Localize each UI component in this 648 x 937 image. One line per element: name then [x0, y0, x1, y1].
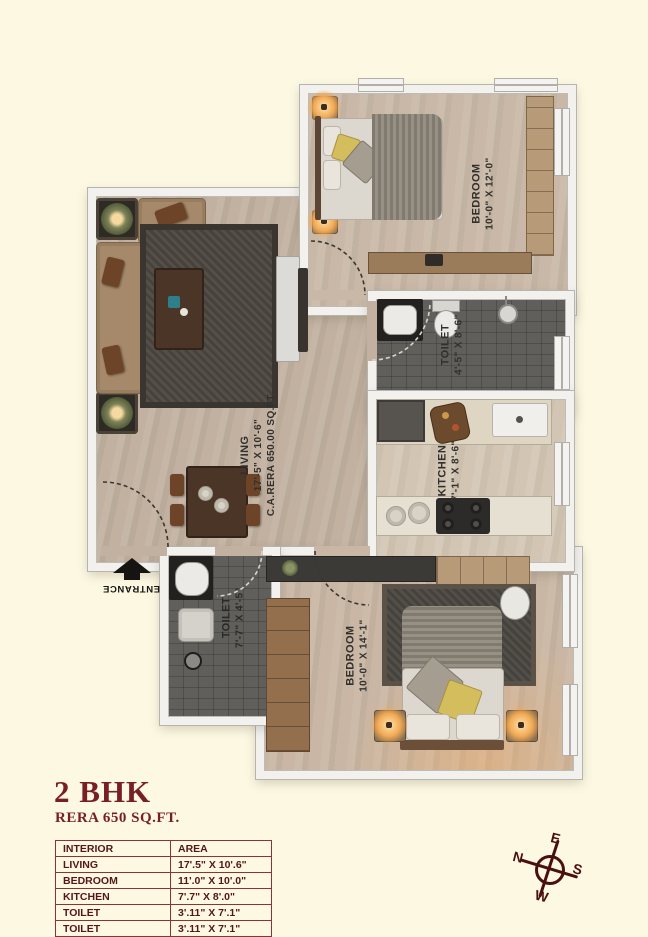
door-opening	[314, 546, 370, 556]
room-label-kitchen: KITCHEN 7'-1" X 8'-6"	[435, 416, 462, 526]
bedside-lamp	[502, 706, 540, 744]
dining-chair	[170, 474, 184, 496]
coffee-table	[154, 268, 204, 350]
toilet-bowl	[178, 608, 214, 642]
cell-area: 3'.11" X 7'.1"	[171, 921, 272, 937]
shower-arm	[505, 296, 507, 305]
table-row: LIVING 17'.5" X 10'.6"	[56, 857, 272, 873]
cell-room: TOILET	[56, 921, 171, 937]
cell-room: TOILET	[56, 905, 171, 921]
cell-area: 3'.11" X 7'.1"	[171, 905, 272, 921]
refrigerator	[377, 400, 425, 442]
window	[562, 684, 578, 756]
table-row: KITCHEN 7'.7" X 8'.0"	[56, 889, 272, 905]
door-opening	[101, 546, 167, 556]
window	[554, 442, 570, 506]
wash-basin	[383, 305, 417, 335]
potted-plant	[96, 392, 138, 434]
table-header-row: INTERIOR AREA	[56, 841, 272, 857]
room-label-toilet1: TOILET 4'-5" X 8'-6"	[438, 290, 465, 400]
headboard	[315, 116, 321, 220]
col-header-interior: INTERIOR	[56, 841, 171, 857]
cell-area: 7'.7" X 8'.0"	[171, 889, 272, 905]
potted-plant	[96, 198, 138, 240]
pillow	[456, 714, 500, 740]
dresser-desk	[368, 252, 532, 274]
door-opening	[367, 301, 377, 361]
room-label-toilet2: TOILET 7'-7" X 4'-5"	[219, 563, 246, 673]
wardrobe	[526, 96, 554, 256]
serving-plate	[386, 506, 406, 526]
room-label-bedroom1: BEDROOM 10'-0" X 12'-0"	[469, 129, 496, 259]
window	[554, 108, 570, 176]
window	[562, 574, 578, 648]
bedside-lamp	[370, 706, 408, 744]
entrance-arrow-icon	[113, 558, 151, 573]
shower-head-icon	[498, 304, 518, 324]
door-opening	[310, 290, 366, 300]
window	[554, 336, 570, 390]
desk-plant	[282, 560, 298, 576]
table-row: TOILET 3'.11" X 7'.1"	[56, 905, 272, 921]
window	[494, 78, 558, 92]
room-label-bedroom2: BEDROOM 10'-0" X 14'-1"	[343, 591, 370, 721]
floor-plan-page: { "title": {"heading": "2 BHK", "subhead…	[0, 0, 648, 936]
stove-burner	[470, 502, 482, 514]
blanket	[402, 606, 502, 670]
door-opening	[215, 546, 263, 556]
pillow	[323, 160, 341, 190]
table-decor	[180, 308, 188, 316]
entrance-label: ENTRANCE	[104, 583, 160, 594]
window	[358, 78, 404, 92]
dinner-plate	[198, 486, 213, 501]
table-row: TOILET 3'.11" X 7'.1"	[56, 921, 272, 937]
page-title: 2 BHK	[54, 774, 151, 810]
stove-burner	[470, 518, 482, 530]
dining-chair	[170, 504, 184, 526]
cell-room: LIVING	[56, 857, 171, 873]
sink-drain	[516, 416, 523, 423]
entrance-arrow-stem	[124, 573, 140, 580]
dinner-plate	[214, 498, 229, 513]
col-header-area: AREA	[171, 841, 272, 857]
cell-area: 17'.5" X 10'.6"	[171, 857, 272, 873]
wardrobe	[266, 598, 310, 752]
cell-room: KITCHEN	[56, 889, 171, 905]
tv-panel	[298, 268, 308, 352]
headboard	[400, 740, 504, 750]
pillow	[406, 714, 450, 740]
floor-drain-icon	[184, 652, 202, 670]
wardrobe	[436, 556, 530, 586]
blanket	[372, 114, 442, 220]
cell-room: BEDROOM	[56, 873, 171, 889]
wash-basin	[175, 562, 209, 596]
area-table: INTERIOR AREA LIVING 17'.5" X 10'.6" BED…	[55, 840, 272, 937]
bedroom-chair	[500, 586, 530, 620]
page-subtitle: RERA 650 SQ.FT.	[55, 810, 180, 827]
cell-area: 11'.0" X 10'.0"	[171, 873, 272, 889]
table-decor	[168, 296, 180, 308]
tv-console	[276, 256, 300, 362]
desk-item	[425, 254, 443, 266]
room-label-living: LIVING 17'-5" X 10'-6" C.A.RERA 650.00 S…	[238, 380, 278, 530]
table-row: BEDROOM 11'.0" X 10'.0"	[56, 873, 272, 889]
serving-plate	[408, 502, 430, 524]
